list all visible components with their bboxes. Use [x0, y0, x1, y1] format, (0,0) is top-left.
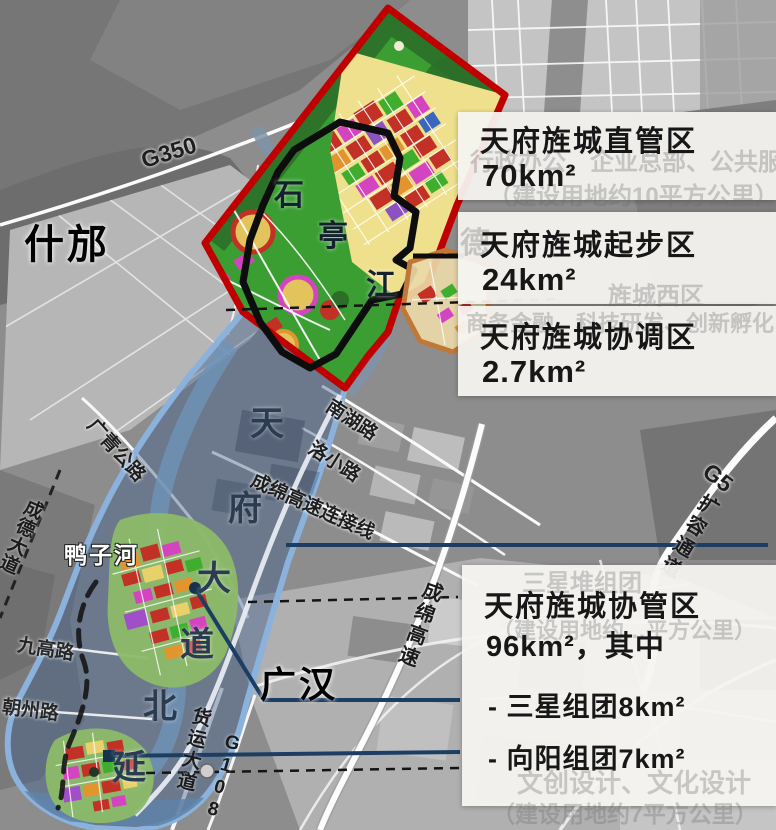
callout-box-xietiao: 商务金融、科技研发、创新孵化 天府旌城协调区 2.7km²	[458, 306, 776, 396]
callout-box-qibu: 德 旌城西区 天府旌城起步区 24km²	[458, 212, 776, 304]
river-char-ting: 亭	[318, 211, 348, 255]
callout-xieguan-title: 天府旌城协管区	[484, 583, 701, 625]
callout-sanxing-item: - 三星组团8km²	[488, 685, 686, 724]
river-char-shi: 石	[274, 170, 304, 214]
map-dot	[89, 767, 99, 777]
tianfu-avenue-char-1: 天	[250, 396, 284, 445]
planning-map-screenshot: 什邡 广汉 鸭子河 石 亭 江 G350 南湖路 洛小路 成绵高速连接线 广青公…	[0, 0, 776, 830]
callout-qibu-title: 天府旌城起步区	[480, 222, 697, 264]
callout-xietiao-title: 天府旌城协调区	[480, 314, 697, 356]
tianfu-avenue-char-3: 大	[197, 551, 231, 600]
callout-xiangyang-item: - 向阳组团7km²	[488, 737, 686, 776]
callout-xietiao-area: 2.7km²	[482, 354, 586, 390]
city-label-shifang: 什邡	[24, 212, 110, 270]
river-char-jiang: 江	[366, 260, 396, 304]
river-label-yazihe: 鸭子河	[64, 536, 139, 570]
tianfu-avenue-char-5: 北	[143, 679, 177, 728]
tianfu-avenue-char-4: 道	[180, 617, 214, 666]
callout-box-xieguan: 三星堆组团 （建设用地约…平方公里） 文创设计、文化设计 （建设用地约7平方公里…	[462, 565, 776, 806]
callout-zhiguan-title: 天府旌城直管区	[480, 118, 697, 160]
callout-xieguan-area: 96km²，其中	[486, 623, 665, 665]
city-label-guanghan: 广汉	[260, 656, 338, 708]
callout-box-zhiguan: 行政办公、企业总部、公共服务 （建设用地约10平方公里） 天府旌城直管区 70k…	[458, 112, 776, 200]
watermark-text: （建设用地约7平方公里）	[492, 795, 758, 829]
tianfu-avenue-char-2: 府	[228, 481, 262, 530]
callout-zhiguan-area: 70km²	[482, 158, 577, 194]
tianfu-avenue-char-6: 延	[112, 740, 146, 789]
callout-qibu-area: 24km²	[482, 262, 577, 298]
